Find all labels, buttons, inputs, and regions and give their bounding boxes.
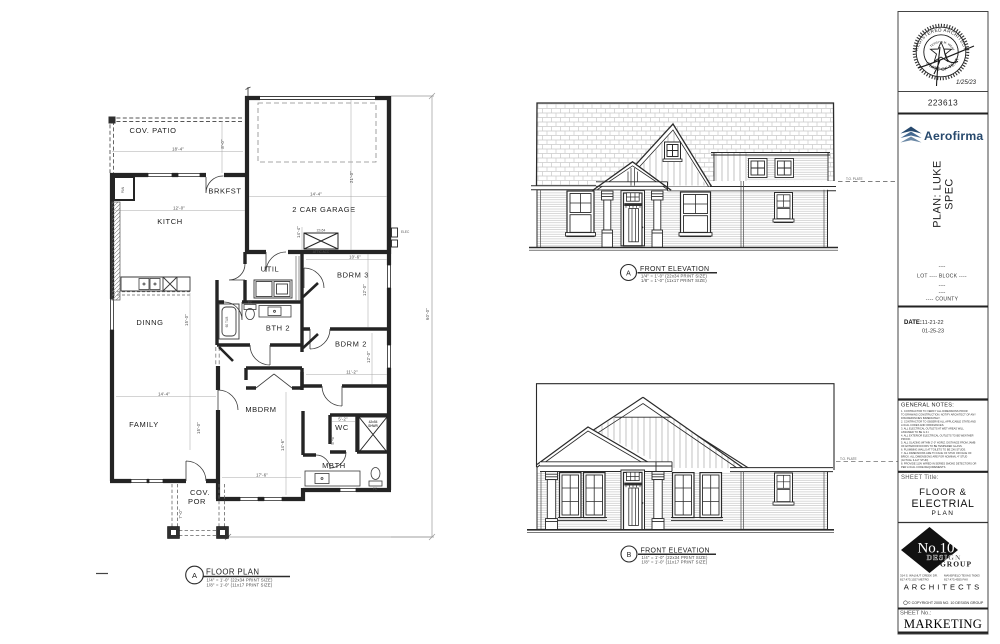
svg-text:© COPYRIGHT 2005 NO. 10 DESIGN: © COPYRIGHT 2005 NO. 10 DESIGN GROUP bbox=[908, 601, 984, 605]
svg-text:17'-6": 17'-6" bbox=[256, 473, 268, 478]
svg-text:KITCH: KITCH bbox=[157, 217, 183, 226]
svg-text:GROUP: GROUP bbox=[940, 560, 972, 569]
svg-text:OF EXTERIOR DOORS TO BE TEMPER: OF EXTERIOR DOORS TO BE TEMPERED GLASS. bbox=[901, 444, 963, 448]
svg-text:FLOOR PLAN: FLOOR PLAN bbox=[206, 568, 259, 577]
svg-text:15'-0": 15'-0" bbox=[184, 314, 189, 326]
svg-text:223613: 223613 bbox=[928, 99, 958, 108]
svg-text:14'-4": 14'-4" bbox=[296, 226, 301, 238]
svg-text:BTH 2: BTH 2 bbox=[266, 324, 290, 333]
svg-text:PROOF.: PROOF. bbox=[901, 437, 911, 441]
svg-text:Aerofirma: Aerofirma bbox=[924, 129, 983, 143]
svg-text:T.O. PLATE: T.O. PLATE bbox=[840, 457, 857, 461]
svg-text:PLAN: LUKE: PLAN: LUKE bbox=[932, 160, 944, 227]
svg-text:5. ALL GLAZING WITHIN 2'-0" HO: 5. ALL GLAZING WITHIN 2'-0" HORIZ. DISTA… bbox=[901, 441, 976, 445]
svg-text:60'-0": 60'-0" bbox=[425, 308, 430, 320]
svg-text:18'-4": 18'-4" bbox=[172, 147, 184, 152]
svg-text:817.473.4555 FAX: 817.473.4555 FAX bbox=[944, 578, 968, 582]
svg-text:DINNG: DINNG bbox=[136, 318, 163, 327]
svg-text:PC: PC bbox=[248, 301, 253, 305]
svg-text:1/8" = 1'-0" (11x17 PRINT SIZ: 1/8" = 1'-0" (11x17 PRINT SIZE) bbox=[642, 560, 708, 565]
svg-text:PAN: PAN bbox=[121, 186, 125, 193]
svg-text:21'-0": 21'-0" bbox=[349, 171, 354, 183]
svg-text:LOT ---- BLOCK ----: LOT ---- BLOCK ---- bbox=[917, 274, 967, 280]
svg-text:7'-0": 7'-0" bbox=[178, 509, 183, 519]
svg-text:MBTH: MBTH bbox=[322, 461, 346, 470]
svg-text:4. ALL EXTERIOR ELECTRICAL OUT: 4. ALL EXTERIOR ELECTRICAL OUTLETS TO BE… bbox=[901, 434, 974, 438]
svg-text:1. CONTRACTOR TO VERIFY ALL DI: 1. CONTRACTOR TO VERIFY ALL DIMENSIONS P… bbox=[901, 409, 968, 413]
svg-text:1/8" = 1'-0" (11x17 PRINT SIZ: 1/8" = 1'-0" (11x17 PRINT SIZE) bbox=[641, 278, 707, 283]
svg-text:5'-2": 5'-2" bbox=[338, 417, 348, 422]
svg-text:A: A bbox=[626, 270, 631, 277]
svg-text:14'-4": 14'-4" bbox=[158, 392, 170, 397]
svg-text:POR: POR bbox=[188, 497, 206, 506]
svg-text:SHWR: SHWR bbox=[368, 424, 378, 428]
svg-text:10'-6": 10'-6" bbox=[349, 255, 361, 260]
svg-text:SPEC: SPEC bbox=[944, 178, 956, 209]
svg-text:B: B bbox=[627, 552, 632, 559]
svg-text:BRICK. ALL DIMENSIONS ARE FOR: BRICK. ALL DIMENSIONS ARE FOR NOMINAL 4"… bbox=[901, 455, 967, 459]
svg-text:1/25/23: 1/25/23 bbox=[956, 80, 977, 86]
svg-text:----: ---- bbox=[939, 264, 946, 270]
svg-text:7. ALL DIMENSIONS ARE TO FACE: 7. ALL DIMENSIONS ARE TO FACE OF STUD OR… bbox=[901, 451, 972, 455]
svg-text:PLAN: PLAN bbox=[932, 510, 955, 517]
svg-text:ARCHITECTS: ARCHITECTS bbox=[904, 583, 983, 592]
svg-text:22x54: 22x54 bbox=[317, 229, 326, 233]
svg-text:ELEC: ELEC bbox=[401, 230, 410, 234]
svg-text:817.473.1027 METRO: 817.473.1027 METRO bbox=[900, 578, 930, 582]
svg-text:FRONT ELEVATION: FRONT ELEVATION bbox=[640, 266, 709, 273]
svg-text:MARKETING: MARKETING bbox=[904, 617, 982, 631]
svg-text:ASSUMED TO BE G.F.I.: ASSUMED TO BE G.F.I. bbox=[901, 430, 929, 434]
svg-text:12'-0": 12'-0" bbox=[173, 206, 185, 211]
svg-text:DISCREPANCIES IMMEDIATELY.: DISCREPANCIES IMMEDIATELY. bbox=[901, 416, 941, 420]
svg-text:ELECTRIAL: ELECTRIAL bbox=[911, 498, 974, 510]
svg-text:BDRM 3: BDRM 3 bbox=[337, 271, 369, 280]
svg-text:(ACTUAL 3-1/2" STUD): (ACTUAL 3-1/2" STUD) bbox=[901, 458, 928, 462]
svg-text:3. ALL ELECTRICAL OUTLETS AT W: 3. ALL ELECTRICAL OUTLETS AT WET AREAS W… bbox=[901, 427, 964, 431]
svg-text:TO DRAWING CONSTRUCTION. NOTIF: TO DRAWING CONSTRUCTION. NOTIFY ARCHITEC… bbox=[901, 413, 976, 417]
svg-text:6. PLUMBING WALLS AT TOILETS T: 6. PLUMBING WALLS AT TOILETS TO BE 2X6 S… bbox=[901, 448, 966, 452]
svg-text:8'-0": 8'-0" bbox=[220, 139, 225, 149]
svg-text:60 TUB: 60 TUB bbox=[225, 317, 229, 328]
svg-text:A: A bbox=[192, 571, 197, 580]
svg-text:GENERAL NOTES:: GENERAL NOTES: bbox=[901, 403, 954, 409]
svg-text:PER LOCAL CODE REQUIREMENTS.: PER LOCAL CODE REQUIREMENTS. bbox=[901, 465, 946, 469]
svg-text:BRKFST: BRKFST bbox=[208, 187, 241, 196]
svg-text:8. PROVIDE 110V WIRED IN SERIE: 8. PROVIDE 110V WIRED IN SERIES SMOKE DE… bbox=[901, 462, 977, 466]
svg-text:LOCAL CODES AND ORDINANCES.: LOCAL CODES AND ORDINANCES. bbox=[901, 423, 944, 427]
svg-text:ATTIC ACC: ATTIC ACC bbox=[313, 250, 330, 254]
svg-text:1/8" = 1'-0" (11x17 PRINT SIZ: 1/8" = 1'-0" (11x17 PRINT SIZE) bbox=[207, 582, 273, 587]
svg-text:UTIL: UTIL bbox=[261, 265, 280, 274]
svg-text:2. CONTRACTOR TO OBSERVE ALL A: 2. CONTRACTOR TO OBSERVE ALL APPLICABLE … bbox=[901, 420, 976, 424]
svg-text:FLOOR &: FLOOR & bbox=[919, 487, 967, 498]
svg-text:14'-6": 14'-6" bbox=[280, 439, 285, 451]
svg-text:COV. PATIO: COV. PATIO bbox=[129, 126, 176, 135]
svg-text:11-21-22: 11-21-22 bbox=[922, 320, 944, 326]
svg-text:12'-0": 12'-0" bbox=[362, 284, 367, 296]
svg-text:BDRM 2: BDRM 2 bbox=[335, 340, 367, 349]
svg-text:---- COUNTY: ---- COUNTY bbox=[926, 297, 959, 303]
svg-text:14'-4": 14'-4" bbox=[310, 192, 322, 197]
svg-text:----: ---- bbox=[939, 283, 946, 289]
svg-text:SHEET Title:: SHEET Title: bbox=[901, 475, 939, 481]
svg-text:SHEET No.:: SHEET No.: bbox=[900, 611, 932, 617]
svg-text:5'-6": 5'-6" bbox=[330, 435, 335, 445]
svg-text:WC: WC bbox=[335, 423, 349, 432]
svg-text:2 CAR GARAGE: 2 CAR GARAGE bbox=[292, 205, 355, 214]
svg-text:MBDRM: MBDRM bbox=[245, 405, 276, 414]
svg-text:----: ---- bbox=[939, 290, 946, 296]
svg-text:FAMILY: FAMILY bbox=[129, 420, 159, 429]
svg-text:DATE:: DATE: bbox=[904, 320, 922, 326]
svg-text:PC: PC bbox=[373, 487, 378, 491]
svg-text:FRONT ELEVATION: FRONT ELEVATION bbox=[641, 548, 710, 555]
svg-text:T.O. PLATE: T.O. PLATE bbox=[846, 177, 863, 181]
svg-text:COV.: COV. bbox=[190, 488, 210, 497]
svg-text:12'-0": 12'-0" bbox=[366, 351, 371, 363]
svg-text:11'-2": 11'-2" bbox=[346, 370, 358, 375]
svg-text:15'-0": 15'-0" bbox=[196, 422, 201, 434]
svg-text:01-25-23: 01-25-23 bbox=[922, 329, 944, 335]
